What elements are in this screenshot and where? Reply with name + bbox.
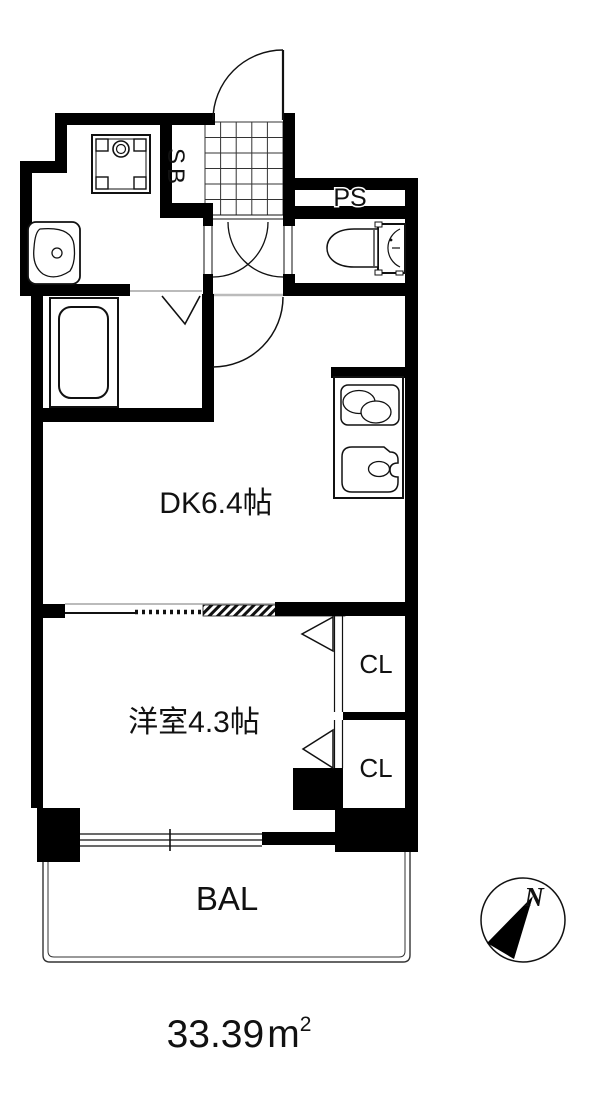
kitchen-stove xyxy=(341,385,399,425)
compass-north-label: N xyxy=(523,882,545,912)
closet-upper-label: CL xyxy=(359,649,392,679)
floor-plan-page: N SB PS DK6.4帖 洋室4.3帖 CL CL BAL 33.39m2 xyxy=(0,0,601,1099)
kitchen-sink xyxy=(342,447,398,492)
balcony-label: BAL xyxy=(196,880,258,917)
bathtub xyxy=(50,298,118,407)
shoe-box-label: SB xyxy=(162,148,189,188)
floor-plan-drawing: N SB PS DK6.4帖 洋室4.3帖 CL CL BAL 33.39m2 xyxy=(0,0,601,1099)
kitchen-counter xyxy=(334,377,403,498)
area-superscript: 2 xyxy=(300,1013,312,1036)
wash-basin xyxy=(28,222,80,284)
western-room-label: 洋室4.3帖 xyxy=(128,706,260,739)
total-area-label: 33.39m2 xyxy=(167,1013,312,1056)
area-value: 33.39 xyxy=(167,1013,265,1056)
dining-kitchen-label: DK6.4帖 xyxy=(159,487,272,520)
area-unit: m xyxy=(267,1013,300,1056)
pipe-space-label: PS xyxy=(333,184,366,212)
washing-machine-pan xyxy=(92,135,150,193)
closet-lower-label: CL xyxy=(359,753,392,783)
